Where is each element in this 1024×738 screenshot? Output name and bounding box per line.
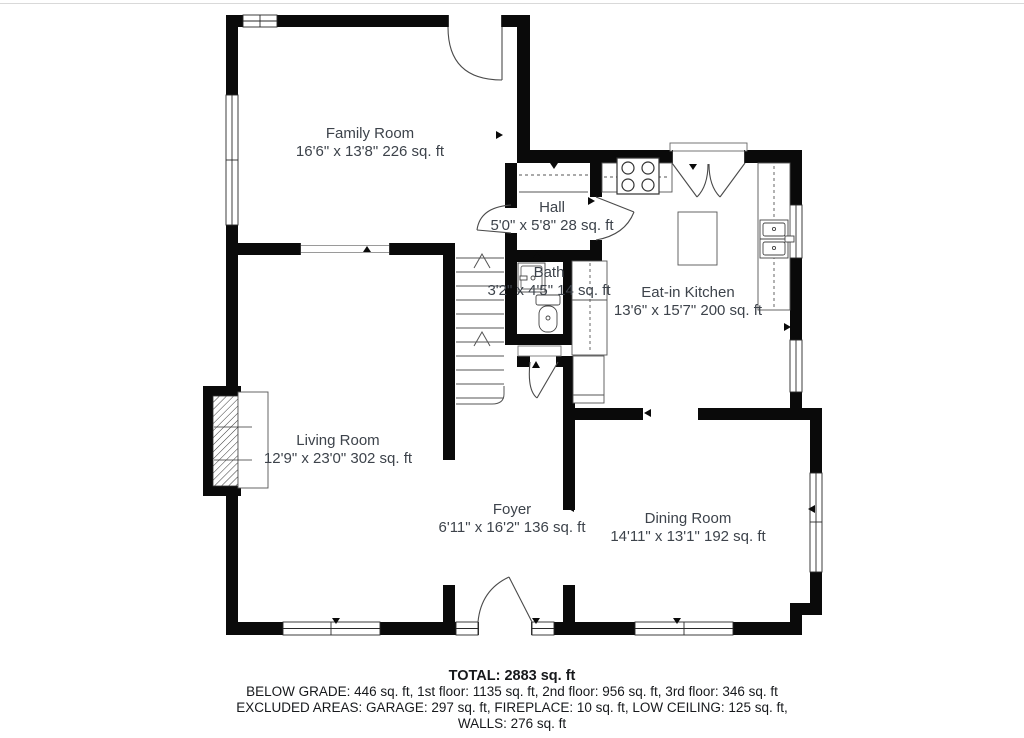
window-family-left: [226, 95, 238, 225]
room-label-bath: Bath 3'2" x 4'5" 14 sq. ft: [487, 264, 610, 300]
room-label-living-room: Living Room 12'9" x 23'0" 302 sq. ft: [264, 432, 412, 468]
room-name: Hall: [490, 199, 613, 217]
room-dimensions: 16'6" x 13'8" 226 sq. ft: [296, 143, 444, 161]
room-dimensions: 14'11" x 13'1" 192 sq. ft: [610, 528, 765, 546]
window-kitchen-right-upper: [790, 205, 802, 258]
room-name: Dining Room: [610, 510, 765, 528]
window-front-door-sidelite-right: [532, 622, 554, 635]
floor-plan-drawing: [0, 0, 1024, 738]
stove-icon: [617, 158, 659, 194]
room-dimensions: 12'9" x 23'0" 302 sq. ft: [264, 450, 412, 468]
room-label-foyer: Foyer 6'11" x 16'2" 136 sq. ft: [438, 501, 585, 537]
floor-areas-line: BELOW GRADE: 446 sq. ft, 1st floor: 1135…: [0, 684, 1024, 700]
hall-closet: [519, 175, 588, 192]
floor-plan: Family Room 16'6" x 13'8" 226 sq. ft Hal…: [0, 0, 1024, 738]
room-label-family-room: Family Room 16'6" x 13'8" 226 sq. ft: [296, 125, 444, 161]
door-family-room-top: [448, 27, 502, 80]
room-dimensions: 13'6" x 15'7" 200 sq. ft: [614, 302, 762, 320]
room-label-hall: Hall 5'0" x 5'8" 28 sq. ft: [490, 199, 613, 235]
excluded-areas-line: EXCLUDED AREAS: GARAGE: 297 sq. ft, FIRE…: [0, 700, 1024, 716]
window-living-bottom: [283, 622, 380, 635]
room-name: Family Room: [296, 125, 444, 143]
area-summary: TOTAL: 2883 sq. ft BELOW GRADE: 446 sq. …: [0, 668, 1024, 732]
room-dimensions: 6'11" x 16'2" 136 sq. ft: [438, 519, 585, 537]
door-kitchen-double: [672, 163, 745, 197]
window-kitchen-right-lower: [790, 340, 802, 392]
fireplace-icon: [203, 386, 268, 496]
window-front-door-sidelite-left: [456, 622, 478, 635]
room-name: Living Room: [264, 432, 412, 450]
room-name: Bath: [487, 264, 610, 282]
hall-closet-lower: [518, 346, 561, 356]
stairs-up-arrow: [474, 332, 490, 346]
room-label-eat-in-kitchen: Eat-in Kitchen 13'6" x 15'7" 200 sq. ft: [614, 284, 762, 320]
window-family-top: [243, 15, 277, 27]
window-dining-bottom: [635, 622, 733, 635]
stairs-handrail: [456, 386, 504, 404]
walls-area-line: WALLS: 276 sq. ft: [0, 716, 1024, 732]
room-label-dining-room: Dining Room 14'11" x 13'1" 192 sq. ft: [610, 510, 765, 546]
refrigerator: [573, 356, 604, 403]
kitchen-island: [678, 212, 717, 265]
room-dimensions: 5'0" x 5'8" 28 sq. ft: [490, 217, 613, 235]
toilet-icon: [536, 295, 560, 332]
front-door: [478, 577, 532, 622]
total-area: TOTAL: 2883 sq. ft: [0, 668, 1024, 684]
room-name: Eat-in Kitchen: [614, 284, 762, 302]
window-dining-right: [810, 473, 822, 572]
room-dimensions: 3'2" x 4'5" 14 sq. ft: [487, 282, 610, 300]
room-name: Foyer: [438, 501, 585, 519]
